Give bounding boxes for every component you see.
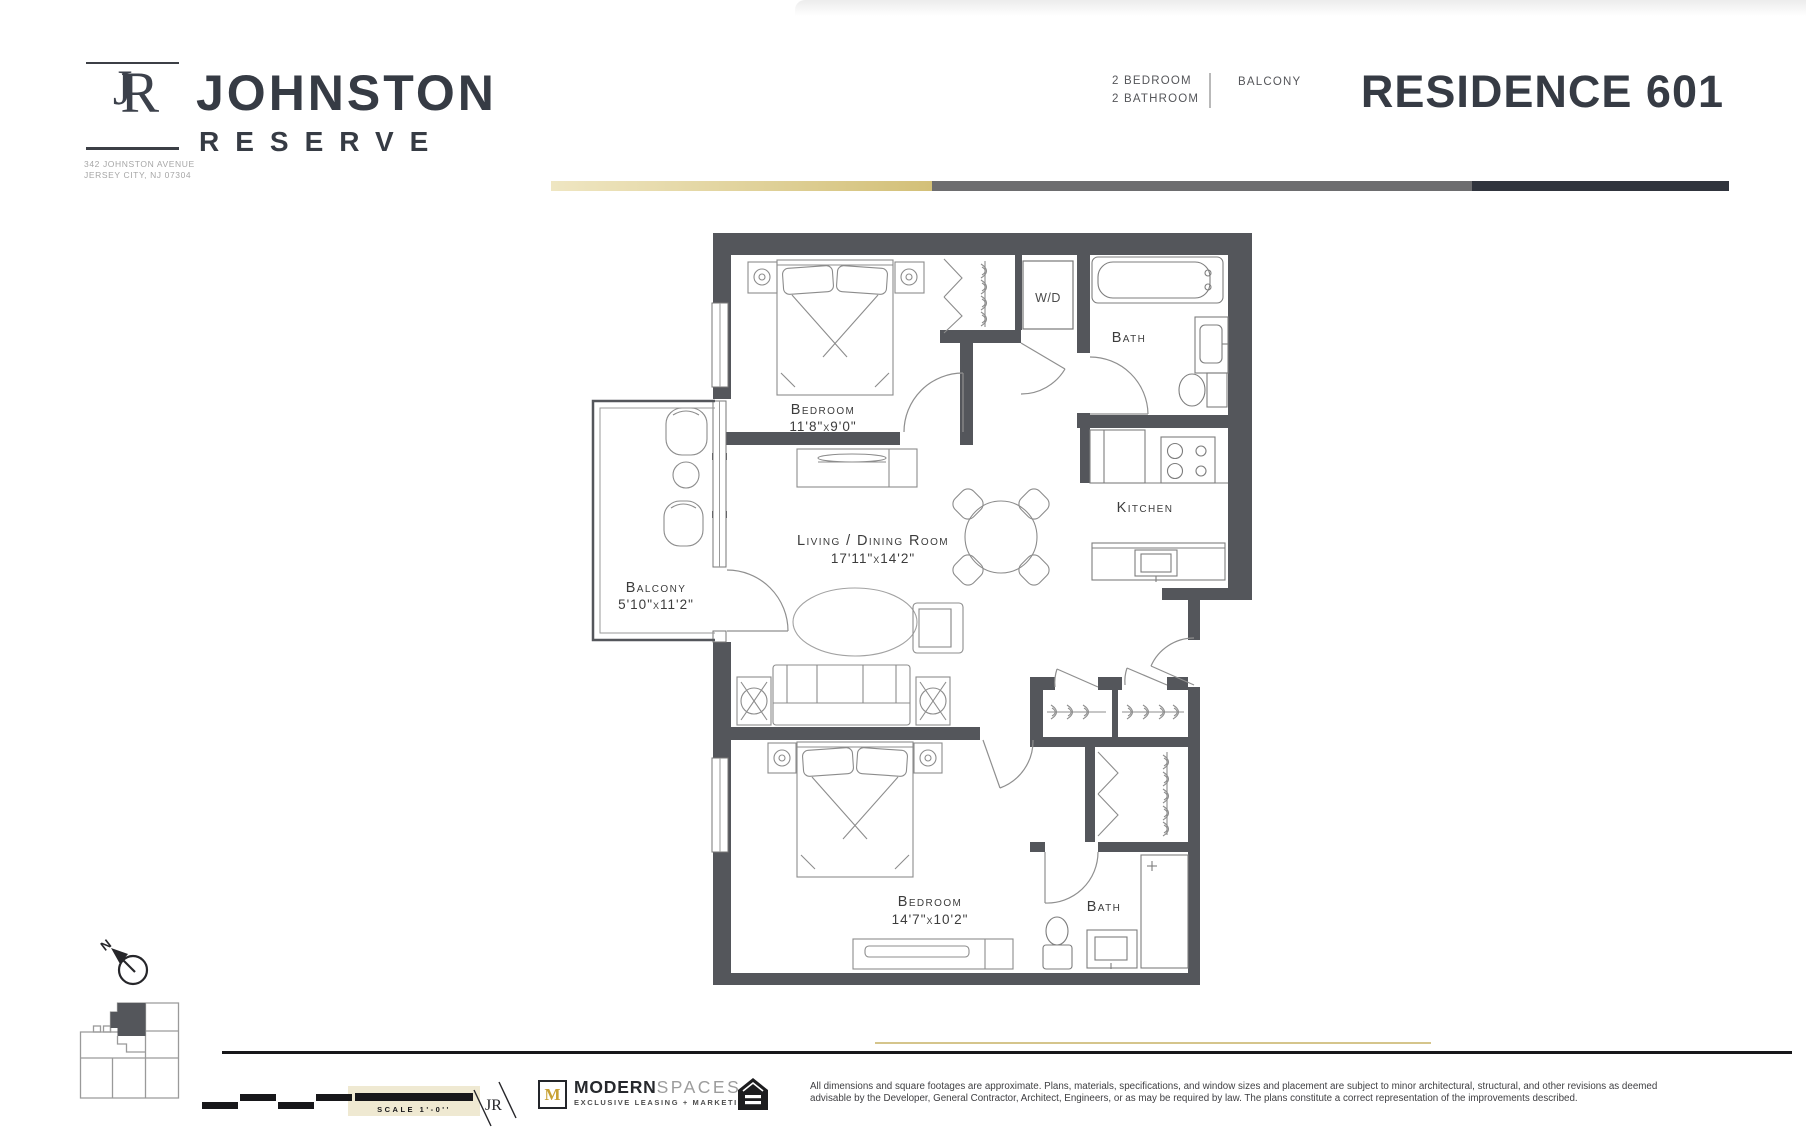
monogram-r: R <box>120 60 159 125</box>
unit-bedrooms: 2 BEDROOM <box>1112 72 1199 90</box>
accent-bar-dark <box>1472 181 1729 191</box>
bath2-label: Bath <box>1087 899 1122 915</box>
bedroom1-dims: 11'8"x9'0" <box>789 419 856 434</box>
unit-feature: BALCONY <box>1238 76 1301 88</box>
footer-gold-line <box>875 1042 1431 1044</box>
top-fade-bar <box>795 0 1806 16</box>
balcony-furniture <box>664 408 707 546</box>
disclaimer-line1: All dimensions and square footages are a… <box>810 1081 1800 1093</box>
living-dims: 17'11"x14'2" <box>831 551 915 566</box>
modernspaces-light: SPACES <box>657 1077 742 1097</box>
jr-footer-mark: JR <box>468 1076 520 1132</box>
modernspaces-tagline: EXCLUSIVE LEASING + MARKETING <box>574 1098 752 1107</box>
living-furniture <box>737 486 1052 725</box>
bedroom2-furniture <box>768 742 1013 969</box>
modernspaces-bold: MODERN <box>574 1077 657 1097</box>
modernspaces-text: MODERNSPACES EXCLUSIVE LEASING + MARKETI… <box>574 1079 752 1107</box>
walls <box>712 233 1252 985</box>
bath1-label: Bath <box>1112 330 1147 346</box>
residence-title: RESIDENCE 601 <box>1361 66 1724 118</box>
key-plan <box>58 988 198 1123</box>
brand-subname: RESERVE <box>199 126 444 158</box>
logo-rule-bottom <box>86 147 179 150</box>
balcony-label: Balcony <box>626 580 687 596</box>
bedroom2-label: Bedroom <box>898 894 962 910</box>
disclaimer-line2: advisable by the Developer, General Cont… <box>810 1093 1800 1105</box>
scale-bar: SCALE 1'-0'' <box>200 1086 480 1118</box>
unit-bathrooms: 2 BATHROOM <box>1112 90 1199 108</box>
address-line2: JERSEY CITY, NJ 07304 <box>84 170 195 181</box>
floor-plan-drawing: W/D <box>555 225 1265 1005</box>
bedroom1-label: Bedroom <box>791 402 855 418</box>
washer-dryer-label: W/D <box>1035 291 1061 305</box>
modernspaces-logo: M MODERNSPACES EXCLUSIVE LEASING + MARKE… <box>538 1079 752 1109</box>
unit-info-divider <box>1209 73 1211 108</box>
jr-monogram-logo: JR <box>96 58 176 126</box>
brand-name: JOHNSTON <box>196 64 497 122</box>
disclaimer: All dimensions and square footages are a… <box>810 1081 1800 1104</box>
floor-plan-sheet: JR 342 JOHNSTON AVENUE JERSEY CITY, NJ 0… <box>0 0 1806 1132</box>
logo-address: 342 JOHNSTON AVENUE JERSEY CITY, NJ 0730… <box>84 159 195 181</box>
balcony-dims: 5'10"x11'2" <box>618 597 694 612</box>
jr-footer-monogram: JR <box>485 1097 502 1114</box>
unit-info: 2 BEDROOM 2 BATHROOM <box>1112 72 1199 108</box>
scale-label: SCALE 1'-0'' <box>377 1105 451 1114</box>
modernspaces-m-icon: M <box>538 1080 567 1109</box>
equal-housing-icon <box>737 1077 769 1111</box>
windows <box>712 303 728 852</box>
accent-bar-gold <box>551 181 932 191</box>
living-label: Living / Dining Room <box>797 533 949 549</box>
address-line1: 342 JOHNSTON AVENUE <box>84 159 195 170</box>
key-plan-unit-highlight <box>118 1003 146 1036</box>
kitchen-label: Kitchen <box>1117 500 1174 516</box>
compass-north-label: N <box>98 936 115 954</box>
bedroom1-furniture <box>748 260 924 487</box>
accent-bar-gray <box>932 181 1472 191</box>
footer-rule <box>222 1051 1792 1054</box>
bedroom2-dims: 14'7"x10'2" <box>892 912 969 927</box>
modernspaces-name: MODERNSPACES <box>574 1079 752 1096</box>
